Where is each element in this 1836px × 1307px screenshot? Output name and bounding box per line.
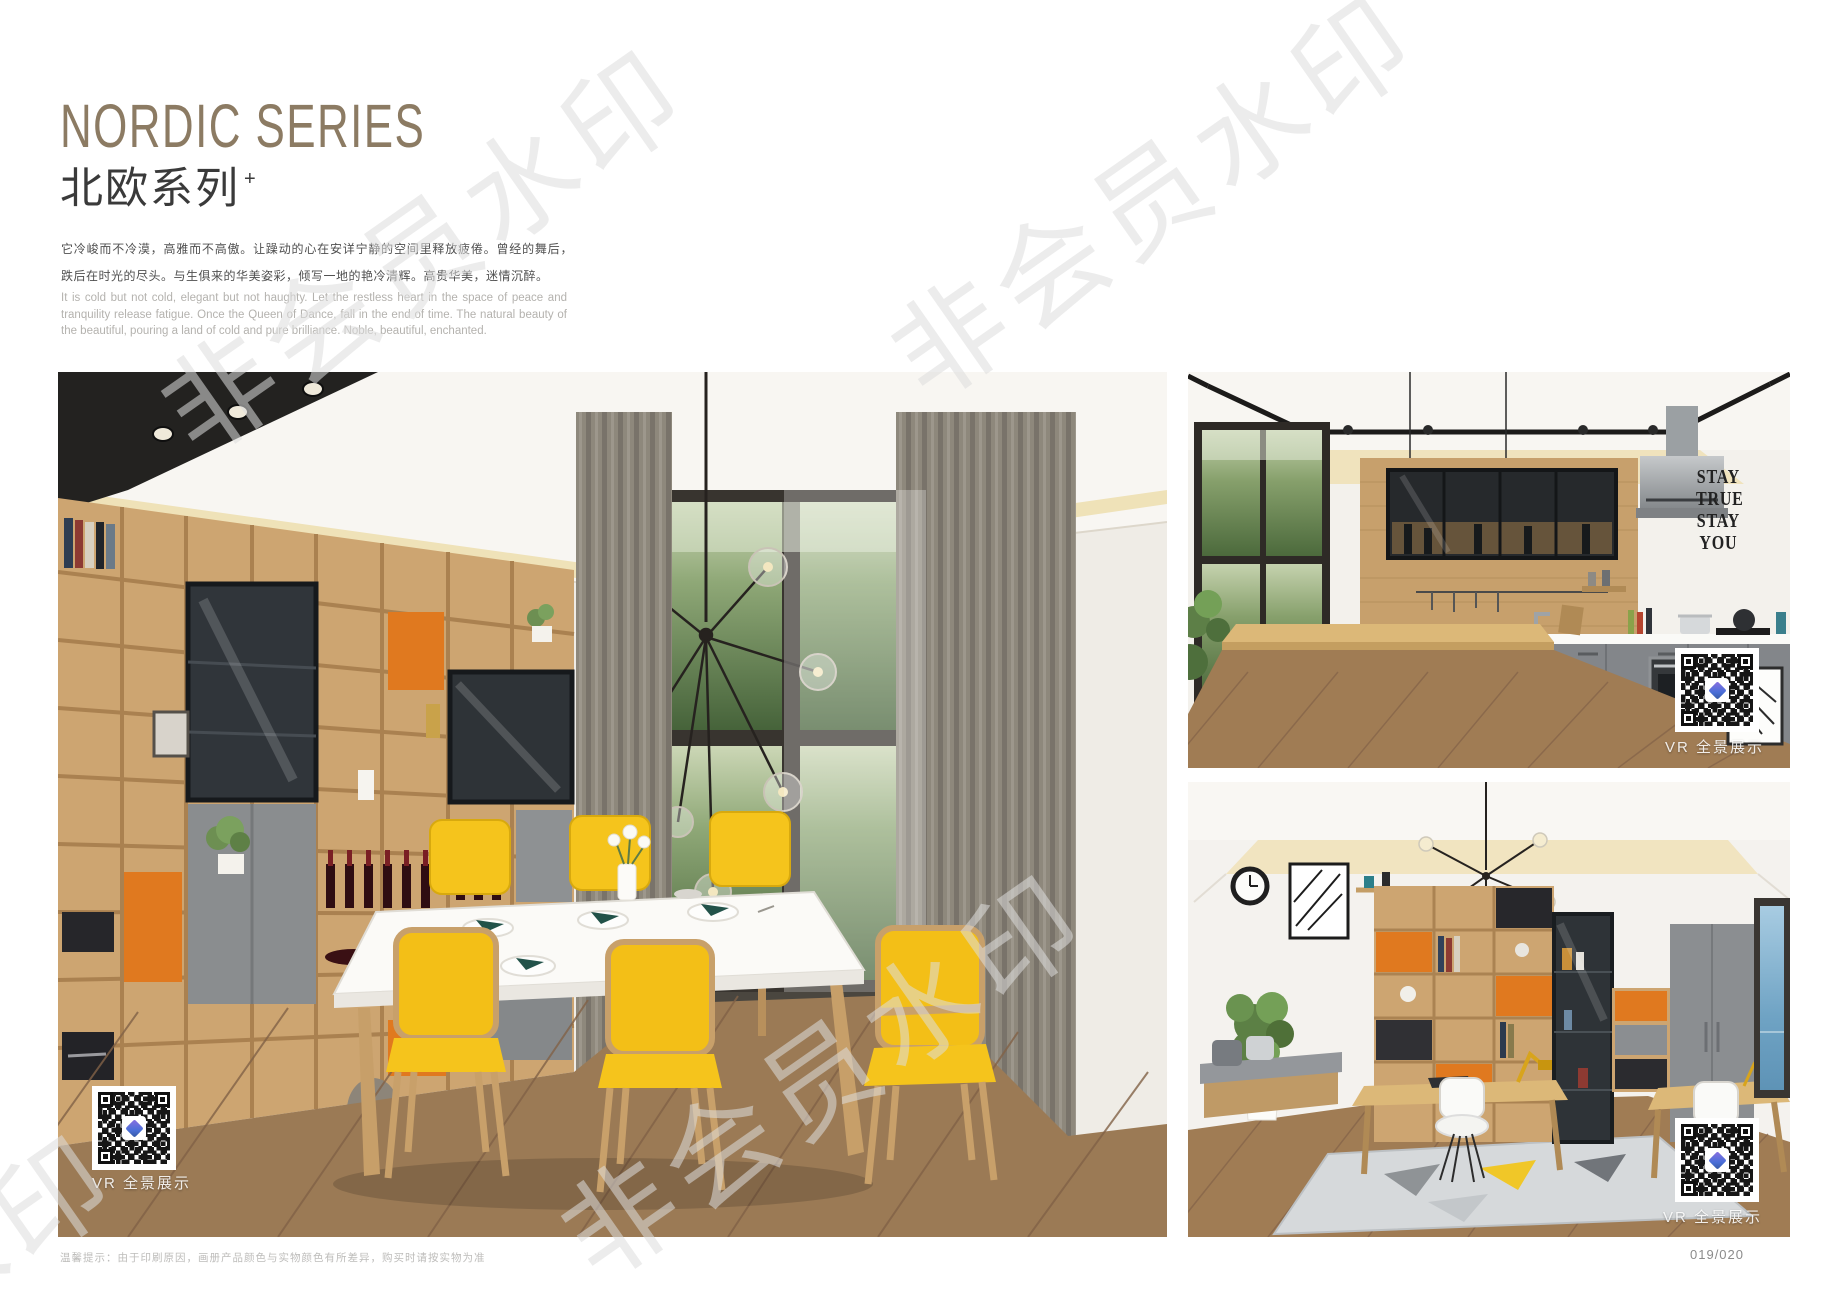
- qr-finder-icon: [155, 1092, 170, 1107]
- vr-panorama-label: VR 全景展示: [92, 1172, 191, 1193]
- dining-room-photo: VR 全景展示: [58, 372, 1167, 1237]
- description-english: It is cold but not cold, elegant but not…: [61, 290, 567, 340]
- catalog-page: NORDIC SERIES 北欧系列+ 它冷峻而不冷漠，高雅而不高傲。让躁动的心…: [0, 0, 1836, 1307]
- qr-finder-icon: [1681, 1124, 1696, 1139]
- qr-finder-icon: [1738, 654, 1753, 669]
- page-subtitle-cn: 北欧系列+: [60, 168, 258, 211]
- cube-unit: [1612, 988, 1670, 1092]
- qr-pattern: [1681, 654, 1753, 726]
- subtitle-text: 北欧系列: [60, 165, 240, 213]
- qr-cube-logo-icon: [122, 1116, 146, 1140]
- qr-finder-icon: [1681, 654, 1696, 669]
- wood-niche: [1360, 458, 1638, 644]
- description-chinese: 它冷峻而不冷漠，高雅而不高傲。让躁动的心在安详宁静的空间里释放疲倦。曾经的舞后，…: [61, 236, 573, 290]
- far-chairs: [430, 812, 790, 894]
- qr-cube-logo-icon: [1705, 1148, 1729, 1172]
- subtitle-plus: +: [244, 168, 258, 190]
- wall-clock: [1233, 869, 1267, 903]
- vr-panorama-label: VR 全景展示: [1665, 736, 1764, 757]
- vr-qr-code-dining: [92, 1086, 176, 1170]
- qr-pattern: [98, 1092, 170, 1164]
- study-room-photo: VR 全景展示: [1188, 782, 1790, 1237]
- vr-qr-code-kitchen: [1675, 648, 1759, 732]
- sea-view-window: [1754, 898, 1790, 1098]
- qr-finder-icon: [1681, 711, 1696, 726]
- page-title: NORDIC SERIES: [60, 96, 425, 157]
- qr-cube-logo-icon: [1705, 678, 1729, 702]
- qr-pattern: [1681, 1124, 1753, 1196]
- dining-room-illustration: [58, 372, 1167, 1237]
- kitchen-photo: STAY TRUE STAY YOU VR 全景展示: [1188, 372, 1790, 768]
- qr-finder-icon: [1681, 1181, 1696, 1196]
- qr-finder-icon: [1738, 1124, 1753, 1139]
- abstract-art: [1290, 864, 1348, 938]
- vr-qr-code-study: [1675, 1118, 1759, 1202]
- wall-decal-text: STAY TRUE STAY YOU: [1696, 466, 1741, 554]
- glass-cabinet: [1554, 914, 1612, 1142]
- qr-finder-icon: [98, 1092, 113, 1107]
- watermark: 非会员水印: [854, 0, 1447, 431]
- page-number: 019/020: [1690, 1247, 1744, 1262]
- footer-disclaimer: 温馨提示：由于印刷原因，画册产品颜色与实物颜色有所差异，购买时请按实物为准: [60, 1250, 486, 1265]
- vr-panorama-label: VR 全景展示: [1663, 1206, 1762, 1227]
- qr-finder-icon: [98, 1149, 113, 1164]
